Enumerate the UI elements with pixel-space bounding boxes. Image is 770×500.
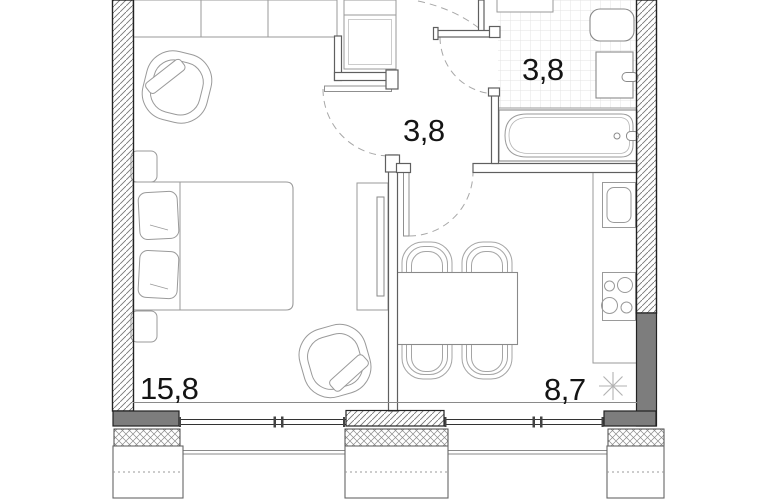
bed-icon <box>133 182 293 310</box>
floor-plan: 15,8 3,8 3,8 8,7 <box>0 0 770 500</box>
nightstand-bottom-icon <box>131 311 157 342</box>
toilet-icon <box>590 9 634 41</box>
balcony-pillar <box>607 446 664 498</box>
bathroom-area-label: 3,8 <box>522 52 564 87</box>
tv-icon <box>377 197 384 296</box>
door-jamb <box>489 88 500 96</box>
dining-table-icon <box>397 273 518 345</box>
bathtub-icon <box>499 110 639 161</box>
door-swing-arc <box>323 89 390 156</box>
kitchen-sink-icon <box>603 183 636 228</box>
living-room <box>131 0 396 404</box>
window-right <box>444 417 604 428</box>
hall-cabinet-icon <box>344 0 396 69</box>
insulation-strip <box>608 429 664 446</box>
window-mullion <box>274 417 277 428</box>
window-mullion <box>281 417 284 428</box>
bottom-wall-solid-right <box>604 411 656 426</box>
door-jamb <box>386 70 398 89</box>
wall <box>335 73 392 81</box>
bottom-wall-solid-left <box>113 411 179 426</box>
armchair-top-icon <box>137 45 218 129</box>
right-exterior-wall-solid <box>637 313 657 426</box>
right-exterior-wall <box>637 0 657 313</box>
bathroom-door-swing-arc <box>440 37 497 94</box>
wall <box>436 31 498 38</box>
pillow-icon <box>138 250 179 299</box>
wall <box>397 164 411 173</box>
pillow-icon <box>138 191 179 240</box>
kitchen-door <box>404 172 474 236</box>
wall <box>473 164 637 173</box>
insulation-strip <box>345 429 448 446</box>
bathroom <box>497 0 639 161</box>
cooktop-icon <box>602 273 636 321</box>
window-left <box>179 417 346 428</box>
wardrobe-icon <box>133 0 337 37</box>
kitchen <box>397 172 638 400</box>
kitchen-area-label: 8,7 <box>544 372 586 407</box>
window-mullion <box>540 417 543 428</box>
living-room-door <box>323 86 392 156</box>
door-swing-arc <box>409 172 473 236</box>
armchair-bottom-icon <box>293 318 378 404</box>
bottom-wall-hatched-mid <box>346 411 444 427</box>
window-mullion <box>533 417 536 428</box>
insulation-strips <box>114 429 664 446</box>
washbasin-icon <box>596 52 638 98</box>
insulation-strip <box>114 429 180 446</box>
wall <box>389 155 398 411</box>
tv-console-icon <box>357 183 388 310</box>
living-room-area-label: 15,8 <box>140 371 198 406</box>
wall <box>479 0 485 31</box>
bathroom-shelf <box>497 0 553 12</box>
wall <box>492 92 499 164</box>
left-exterior-wall <box>113 0 134 411</box>
door-jamb <box>490 27 501 38</box>
balcony <box>113 446 664 498</box>
nightstand-top-icon <box>131 151 157 182</box>
hallway-area-label: 3,8 <box>403 113 445 148</box>
door-jamb <box>434 28 439 40</box>
entry-door-swing-arc <box>418 1 480 29</box>
floor-plan-canvas: 15,8 3,8 3,8 8,7 <box>0 0 770 500</box>
vent-shaft-asterisk-icon <box>599 372 627 400</box>
